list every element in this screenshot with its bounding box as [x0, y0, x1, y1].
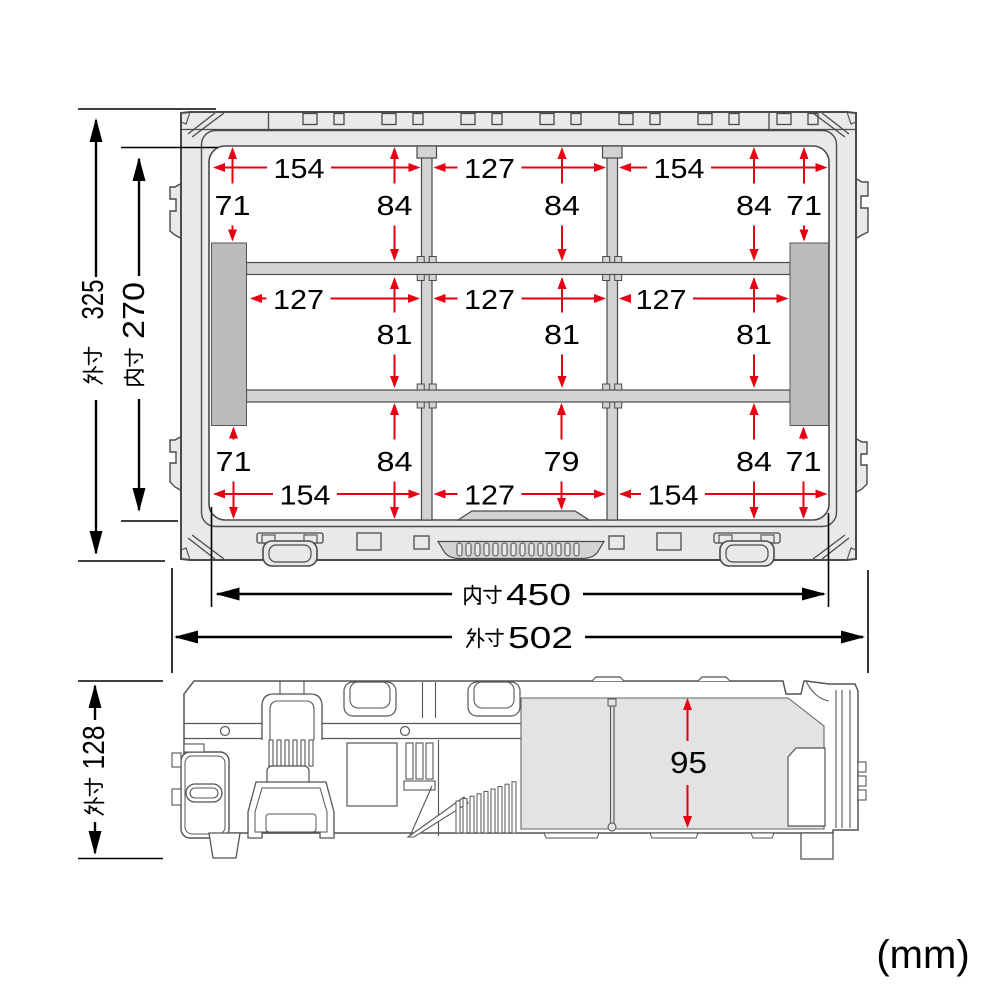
svg-text:127: 127	[273, 284, 324, 315]
svg-text:502: 502	[508, 621, 573, 655]
svg-text:84: 84	[544, 190, 580, 221]
svg-text:127: 127	[636, 284, 687, 315]
svg-text:71: 71	[215, 190, 251, 221]
svg-text:154: 154	[654, 153, 705, 184]
svg-text:154: 154	[280, 480, 331, 511]
svg-text:71: 71	[786, 190, 822, 221]
svg-text:95: 95	[670, 746, 707, 780]
svg-text:(mm): (mm)	[876, 933, 969, 977]
svg-text:450: 450	[506, 578, 571, 612]
svg-text:81: 81	[736, 319, 772, 350]
svg-text:127: 127	[464, 284, 515, 315]
svg-text:79: 79	[544, 446, 580, 477]
svg-text:270: 270	[117, 282, 151, 339]
svg-text:325: 325	[76, 280, 110, 320]
svg-text:81: 81	[377, 319, 413, 350]
svg-text:71: 71	[216, 446, 252, 477]
svg-text:81: 81	[544, 319, 580, 350]
svg-text:154: 154	[274, 153, 325, 184]
svg-text:71: 71	[786, 446, 822, 477]
svg-text:84: 84	[736, 446, 772, 477]
svg-text:154: 154	[648, 480, 699, 511]
svg-text:127: 127	[464, 153, 515, 184]
svg-text:84: 84	[377, 446, 413, 477]
svg-text:84: 84	[377, 190, 413, 221]
svg-text:128: 128	[77, 726, 111, 770]
svg-text:127: 127	[464, 480, 515, 511]
svg-text:84: 84	[736, 190, 772, 221]
